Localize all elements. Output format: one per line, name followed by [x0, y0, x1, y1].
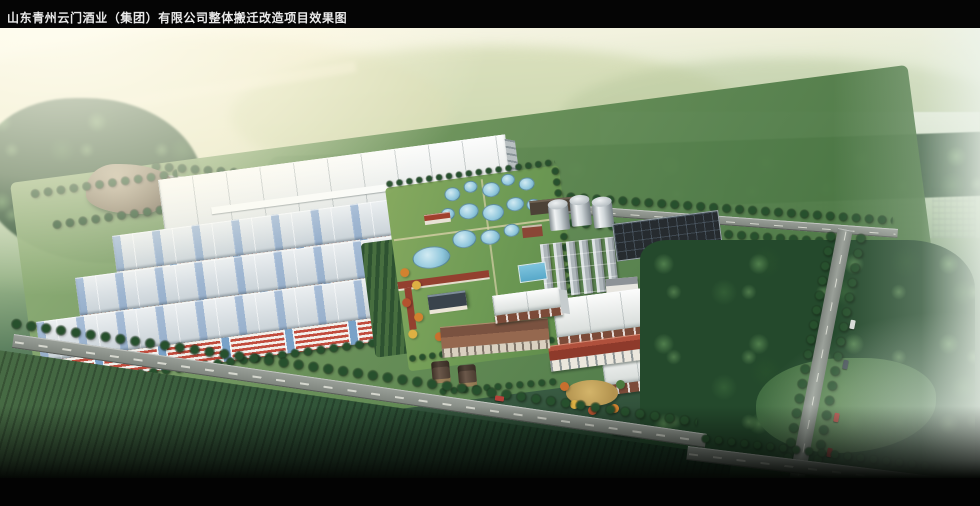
- traditional-pavilion: [427, 290, 467, 310]
- pond: [444, 186, 462, 202]
- rendering-window: 山东青州云门酒业（集团）有限公司整体搬迁改造项目效果图: [0, 0, 980, 506]
- red-brick-building: [522, 224, 543, 238]
- grain-silo: [569, 199, 592, 227]
- pavilion-corridor: [404, 287, 416, 330]
- pond: [458, 202, 480, 220]
- ornamental-tree: [414, 312, 424, 322]
- title-bar: 山东青州云门酒业（集团）有限公司整体搬迁改造项目效果图: [0, 0, 980, 28]
- ornamental-tree: [616, 380, 625, 389]
- project-title: 山东青州云门酒业（集团）有限公司整体搬迁改造项目效果图: [7, 9, 347, 26]
- grain-silo: [592, 201, 615, 229]
- pond: [481, 203, 505, 223]
- pond: [500, 173, 515, 187]
- bottom-bar: [0, 478, 980, 506]
- grain-silo: [548, 203, 571, 231]
- blue-pool: [518, 261, 548, 283]
- pond: [503, 223, 521, 238]
- ornamental-tree: [400, 268, 410, 278]
- pond: [463, 180, 478, 194]
- pond: [411, 244, 452, 271]
- car: [495, 395, 505, 401]
- ornamental-tree: [411, 280, 421, 290]
- pond: [518, 176, 536, 191]
- rendering-canvas: [0, 28, 980, 478]
- pond: [479, 228, 501, 245]
- ornamental-tree: [408, 329, 418, 339]
